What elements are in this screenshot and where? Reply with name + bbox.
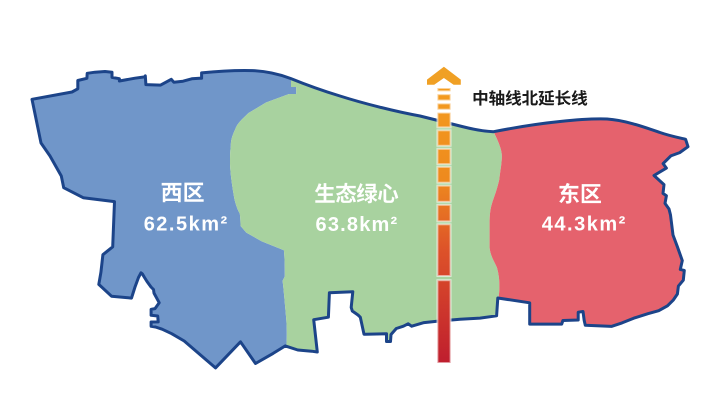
svg-text:44.3km²: 44.3km² [542,214,627,236]
svg-text:62.5km²: 62.5km² [144,214,229,236]
svg-text:63.8km²: 63.8km² [316,214,399,236]
